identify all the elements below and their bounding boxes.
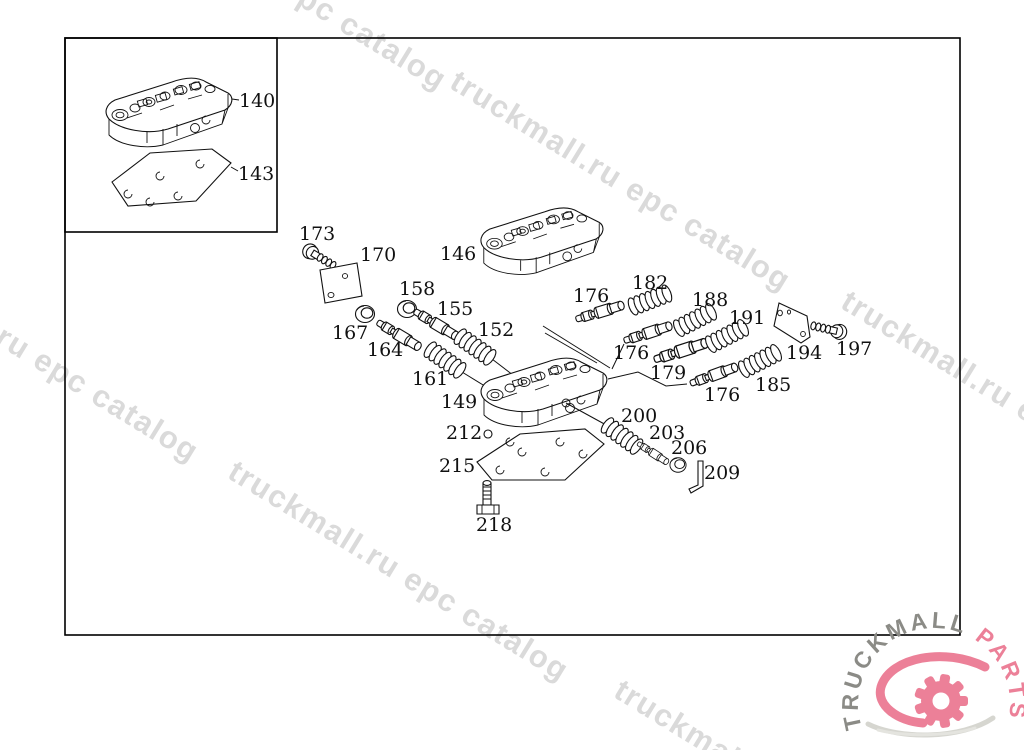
callout-173: 173 xyxy=(299,223,335,245)
callout-158: 158 xyxy=(399,278,435,300)
part-158-bushing xyxy=(398,301,417,318)
watermark-text: truckmall.ru epc catalog xyxy=(222,453,575,688)
callout-176c: 176 xyxy=(704,384,740,406)
watermark-text: truckmall.ru epc catalog xyxy=(0,234,205,469)
truckmall-logo: TRUCKMALL PARTS xyxy=(837,607,1024,735)
callout-176a: 176 xyxy=(573,285,609,307)
callout-182: 182 xyxy=(632,272,668,294)
part-209-pin xyxy=(689,461,703,493)
callout-194: 194 xyxy=(786,342,822,364)
callout-170: 170 xyxy=(360,244,396,266)
callout-209: 209 xyxy=(704,462,740,484)
part-206-nut xyxy=(670,458,686,472)
callout-149: 149 xyxy=(441,391,477,413)
callout-191: 191 xyxy=(729,307,765,329)
page: truckmall.ru epc catalog truckmall.ru ep… xyxy=(0,0,1024,750)
part-215-gasket xyxy=(477,429,604,480)
part-149-valve-body xyxy=(481,358,607,426)
part-140-valve-body xyxy=(106,78,232,146)
callout-164: 164 xyxy=(367,339,403,361)
callout-212: 212 xyxy=(446,422,482,444)
callout-206: 206 xyxy=(671,437,707,459)
part-146-valve-body xyxy=(481,208,603,274)
diagram-canvas: truckmall.ru epc catalog truckmall.ru ep… xyxy=(0,0,1024,750)
watermark-text: truckmall.ru epc catalog xyxy=(608,672,961,750)
callout-146: 146 xyxy=(440,243,476,265)
part-170-plate xyxy=(320,263,362,303)
parts-layer xyxy=(106,78,848,514)
callout-179: 179 xyxy=(650,362,686,384)
callout-167: 167 xyxy=(332,322,368,344)
callout-176b: 176 xyxy=(613,342,649,364)
part-212-ball xyxy=(484,430,492,438)
watermark-text: truckmall.ru epc catalog xyxy=(835,283,1024,518)
callout-215: 215 xyxy=(439,455,475,477)
callout-143: 143 xyxy=(238,163,274,185)
part-218-bolt xyxy=(477,481,499,514)
callout-185: 185 xyxy=(755,374,791,396)
watermark-text: truckmall.ru epc catalog xyxy=(444,63,797,298)
logo-text-parts: PARTS xyxy=(971,622,1024,722)
part-167-bushing xyxy=(356,306,375,323)
callout-161: 161 xyxy=(412,368,448,390)
callout-155: 155 xyxy=(437,298,473,320)
callout-152: 152 xyxy=(478,319,514,341)
part-143-gasket xyxy=(112,149,231,206)
part-194-plate xyxy=(774,303,810,343)
callout-197: 197 xyxy=(836,338,872,360)
callout-218: 218 xyxy=(476,514,512,536)
callout-140: 140 xyxy=(239,90,275,112)
callout-188: 188 xyxy=(692,289,728,311)
